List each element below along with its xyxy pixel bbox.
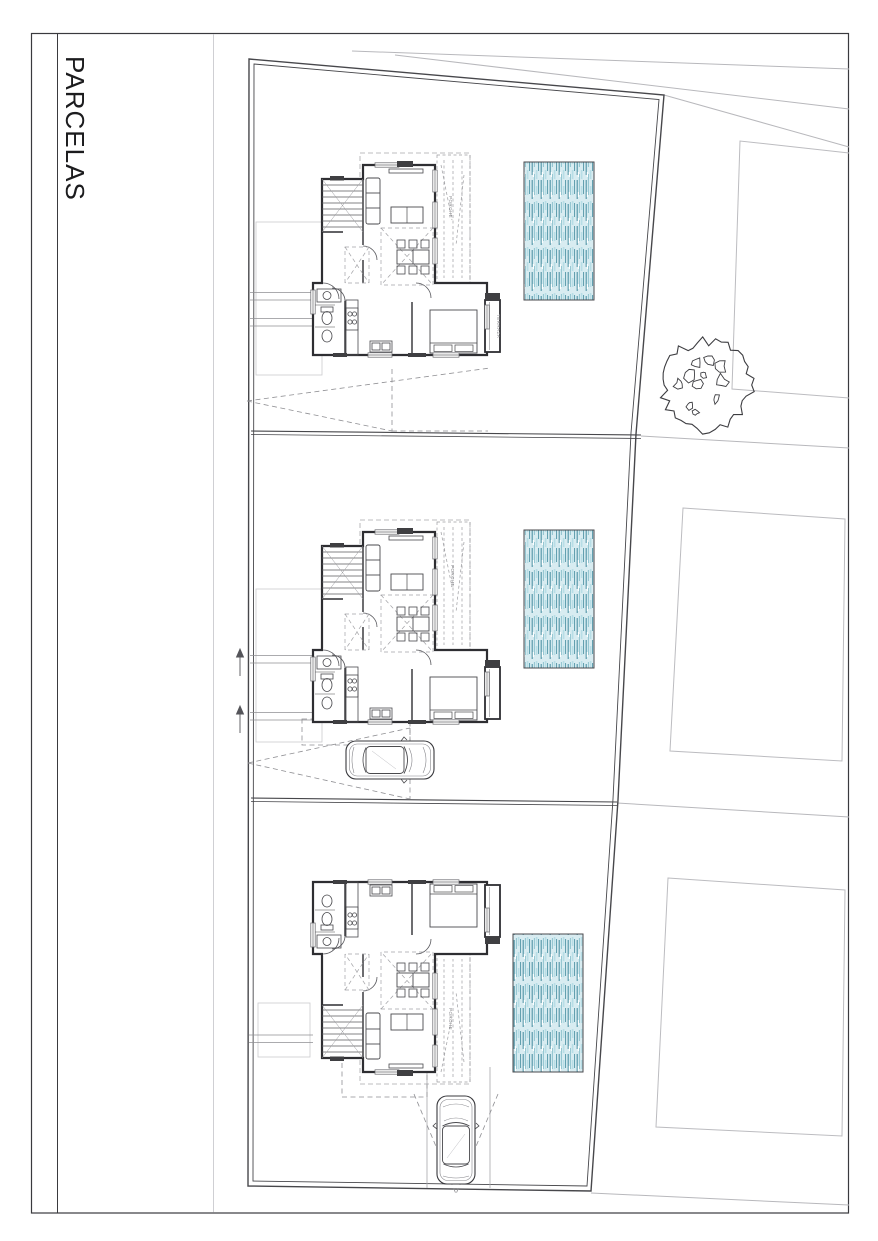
porch-label: PORCHE bbox=[448, 196, 453, 218]
driveway-cone-dashed bbox=[247, 368, 490, 431]
terrace-label: TERRAZA bbox=[496, 314, 501, 339]
parcel-1: PORCHE TERRAZA bbox=[247, 153, 594, 431]
walkway bbox=[250, 293, 313, 327]
tree-inner-blob bbox=[692, 409, 699, 415]
neighbor-plot-ne bbox=[732, 141, 849, 398]
parcel-3: PORCHE bbox=[249, 880, 583, 1194]
tree-inner-blob bbox=[673, 378, 682, 389]
car bbox=[433, 1096, 479, 1184]
tree-inner-blob bbox=[701, 372, 707, 378]
house-2 bbox=[311, 520, 500, 724]
walkway bbox=[249, 1035, 313, 1043]
house-1 bbox=[311, 153, 500, 357]
tree-inner-blob bbox=[704, 356, 715, 366]
parcel-2: PORCHE bbox=[237, 520, 595, 799]
title-block-frame bbox=[32, 34, 849, 1214]
road-lines bbox=[352, 51, 849, 147]
site-boundary-inner bbox=[253, 64, 659, 1186]
tree-inner-blob bbox=[691, 358, 700, 368]
neighbor-plots bbox=[656, 141, 849, 1136]
porch-label: PORCHE bbox=[448, 1008, 453, 1030]
frame-border bbox=[32, 34, 849, 1214]
pool bbox=[524, 162, 594, 300]
tree-inner-blob bbox=[714, 395, 720, 405]
garden-outline bbox=[258, 1003, 310, 1057]
plan-sheet: PARCELAS bbox=[0, 0, 878, 1241]
neighbor-plot-se bbox=[656, 878, 845, 1136]
tree-inner-blob bbox=[684, 369, 695, 383]
site-plan-drawing: PARCELAS bbox=[0, 0, 878, 1241]
tree-inner-blob bbox=[715, 361, 726, 373]
porch-label: PORCHE bbox=[450, 565, 455, 587]
neighbor-plot-e bbox=[670, 508, 845, 761]
house-3 bbox=[311, 880, 500, 1084]
tree-inner-blob bbox=[717, 373, 730, 386]
pool bbox=[513, 934, 583, 1072]
tree bbox=[661, 337, 755, 434]
divider-1-2 bbox=[251, 431, 641, 435]
page-title: PARCELAS bbox=[60, 56, 90, 201]
entry-arrows bbox=[237, 649, 244, 733]
tree-inner-blob bbox=[686, 402, 693, 410]
car bbox=[346, 737, 434, 783]
divider-2-3 bbox=[251, 798, 617, 802]
tree-inner-blob bbox=[692, 379, 703, 388]
walkway bbox=[250, 656, 313, 721]
pool bbox=[524, 530, 594, 668]
